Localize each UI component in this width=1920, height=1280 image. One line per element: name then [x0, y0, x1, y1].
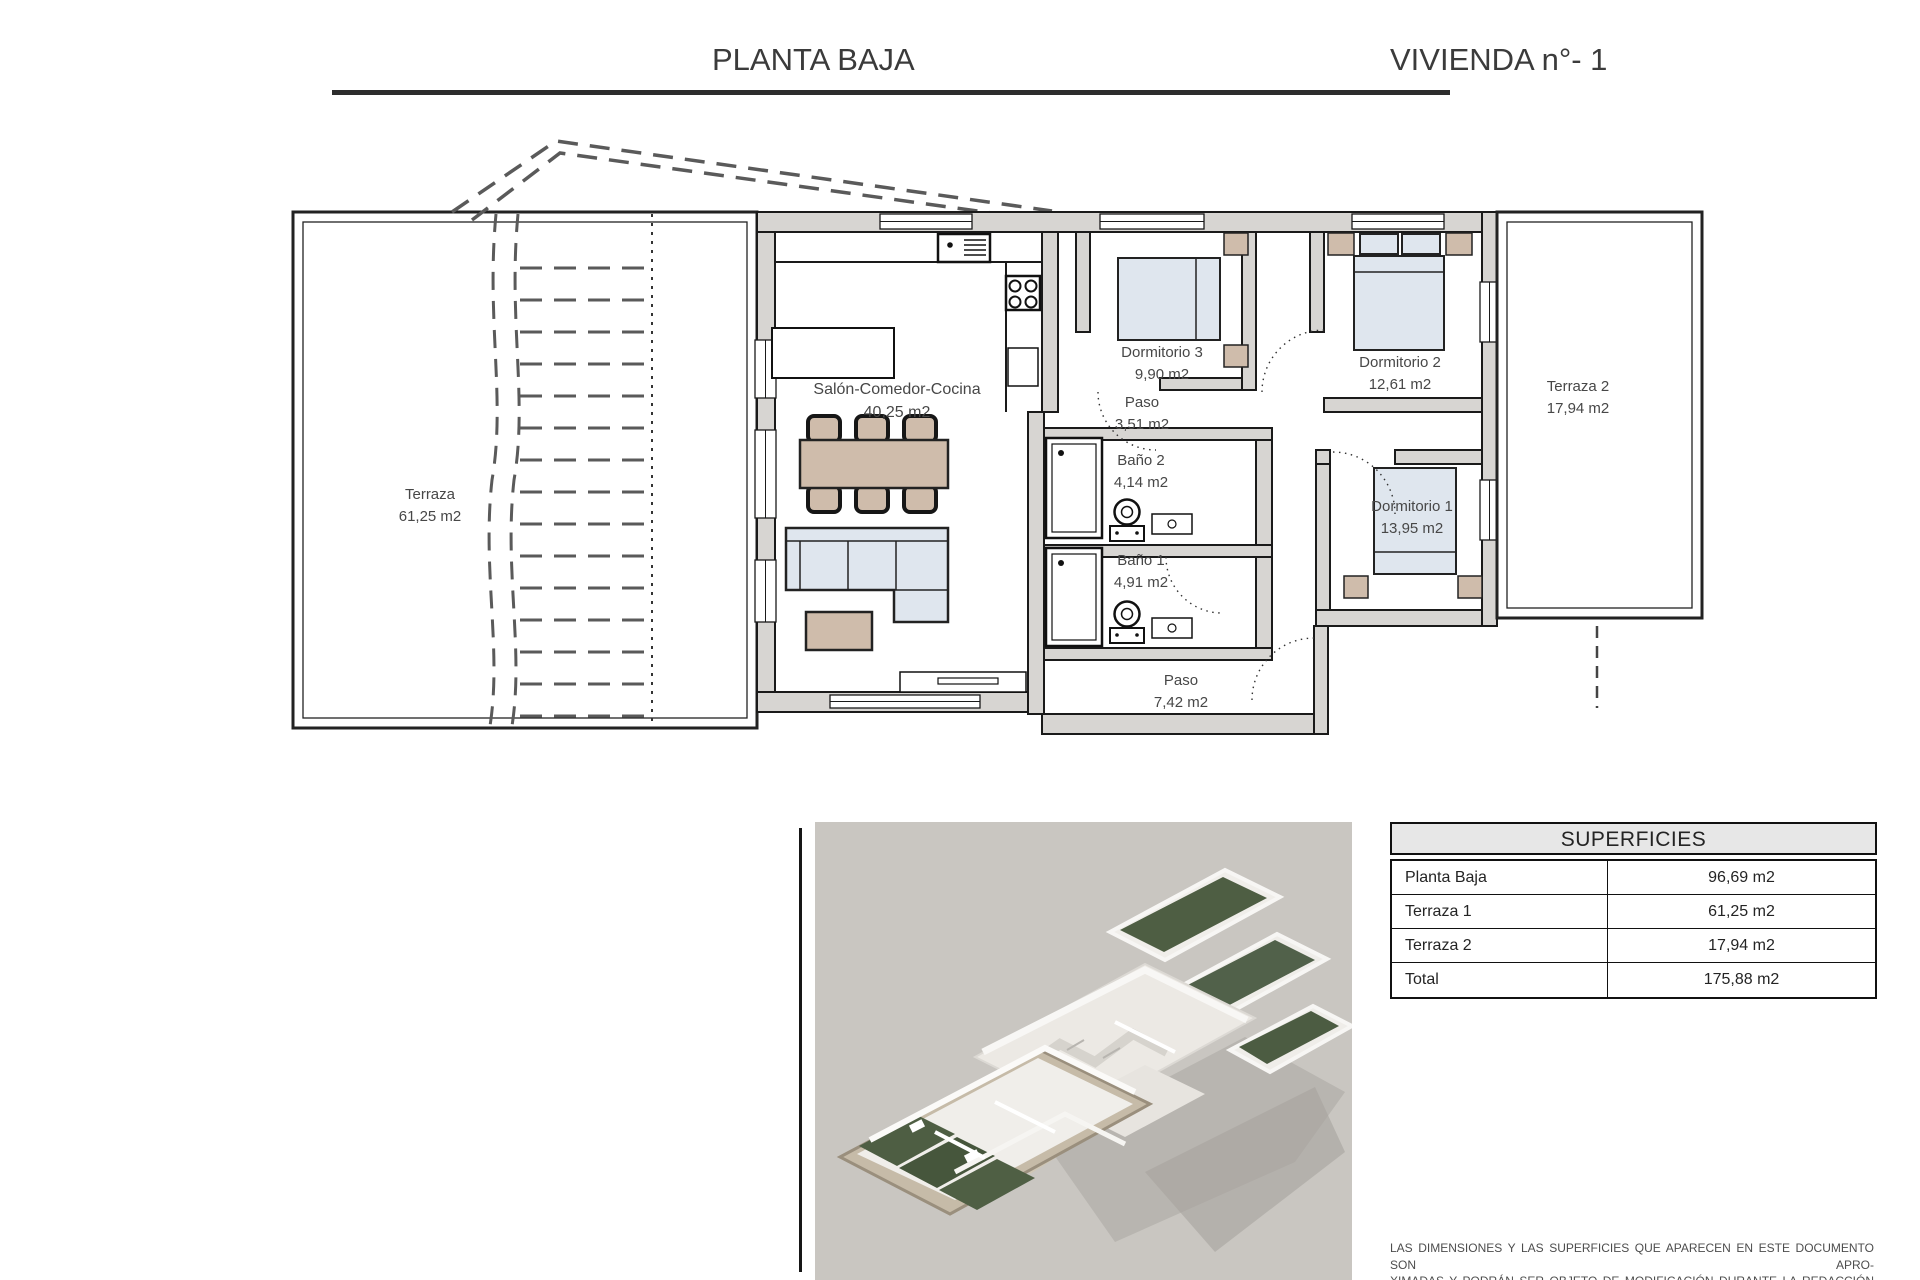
superficies-table-body: Planta Baja 96,69 m2 Terraza 1 61,25 m2 … [1390, 859, 1877, 999]
room-area: 4,91 m2 [1114, 572, 1168, 594]
row-label: Terraza 2 [1392, 929, 1608, 962]
room-label-dormitorio-1: Dormitorio 1 13,95 m2 [1371, 496, 1453, 540]
disclaimer-text: LAS DIMENSIONES Y LAS SUPERFICIES QUE AP… [1390, 1240, 1874, 1280]
table-row-total: Total 175,88 m2 [1392, 963, 1875, 997]
room-name: Terraza [399, 484, 462, 506]
room-area: 9,90 m2 [1121, 364, 1203, 386]
room-area: 17,94 m2 [1547, 398, 1610, 420]
room-name: Dormitorio 1 [1371, 496, 1453, 518]
room-label-dormitorio-3: Dormitorio 3 9,90 m2 [1121, 342, 1203, 386]
room-area: 4,14 m2 [1114, 472, 1168, 494]
row-value: 175,88 m2 [1608, 963, 1875, 997]
room-area: 12,61 m2 [1359, 374, 1441, 396]
room-name: Baño 2 [1114, 450, 1168, 472]
room-label-terraza-2: Terraza 2 17,94 m2 [1547, 376, 1610, 420]
room-area: 3,51 m2 [1115, 414, 1169, 436]
room-label-paso-2: Paso 7,42 m2 [1154, 670, 1208, 714]
room-label-terraza-1: Terraza 61,25 m2 [399, 484, 462, 528]
table-row-planta-baja: Planta Baja 96,69 m2 [1392, 861, 1875, 895]
row-label: Terraza 1 [1392, 895, 1608, 928]
room-name: Paso [1154, 670, 1208, 692]
room-name: Paso [1115, 392, 1169, 414]
room-area: 13,95 m2 [1371, 518, 1453, 540]
row-label: Total [1392, 963, 1608, 997]
superficies-table-title: SUPERFICIES [1390, 822, 1877, 855]
superficies-table: SUPERFICIES Planta Baja 96,69 m2 Terraza… [1390, 822, 1877, 999]
room-label-dormitorio-2: Dormitorio 2 12,61 m2 [1359, 352, 1441, 396]
document-page: PLANTA BAJA VIVIENDA n°- 1 [0, 0, 1920, 1280]
row-value: 61,25 m2 [1608, 895, 1875, 928]
row-value: 96,69 m2 [1608, 861, 1875, 894]
render-separator-line [799, 828, 802, 1272]
room-area: 40,25 m2 [813, 401, 980, 424]
render-3d-image [815, 822, 1352, 1280]
table-row-terraza-1: Terraza 1 61,25 m2 [1392, 895, 1875, 929]
room-name: Dormitorio 3 [1121, 342, 1203, 364]
disclaimer-line-1: LAS DIMENSIONES Y LAS SUPERFICIES QUE AP… [1390, 1240, 1874, 1273]
room-label-paso-1: Paso 3,51 m2 [1115, 392, 1169, 436]
room-label-bano-1: Baño 1 4,91 m2 [1114, 550, 1168, 594]
room-area: 61,25 m2 [399, 506, 462, 528]
disclaimer-line-2: XIMADAS Y PODRÁN SER OBJETO DE MODIFICAC… [1390, 1273, 1874, 1280]
room-name: Dormitorio 2 [1359, 352, 1441, 374]
room-label-salon-comedor-cocina: Salón-Comedor-Cocina 40,25 m2 [813, 378, 980, 424]
room-name: Salón-Comedor-Cocina [813, 378, 980, 401]
row-value: 17,94 m2 [1608, 929, 1875, 962]
row-label: Planta Baja [1392, 861, 1608, 894]
table-row-terraza-2: Terraza 2 17,94 m2 [1392, 929, 1875, 963]
room-name: Terraza 2 [1547, 376, 1610, 398]
room-name: Baño 1 [1114, 550, 1168, 572]
room-label-bano-2: Baño 2 4,14 m2 [1114, 450, 1168, 494]
room-area: 7,42 m2 [1154, 692, 1208, 714]
